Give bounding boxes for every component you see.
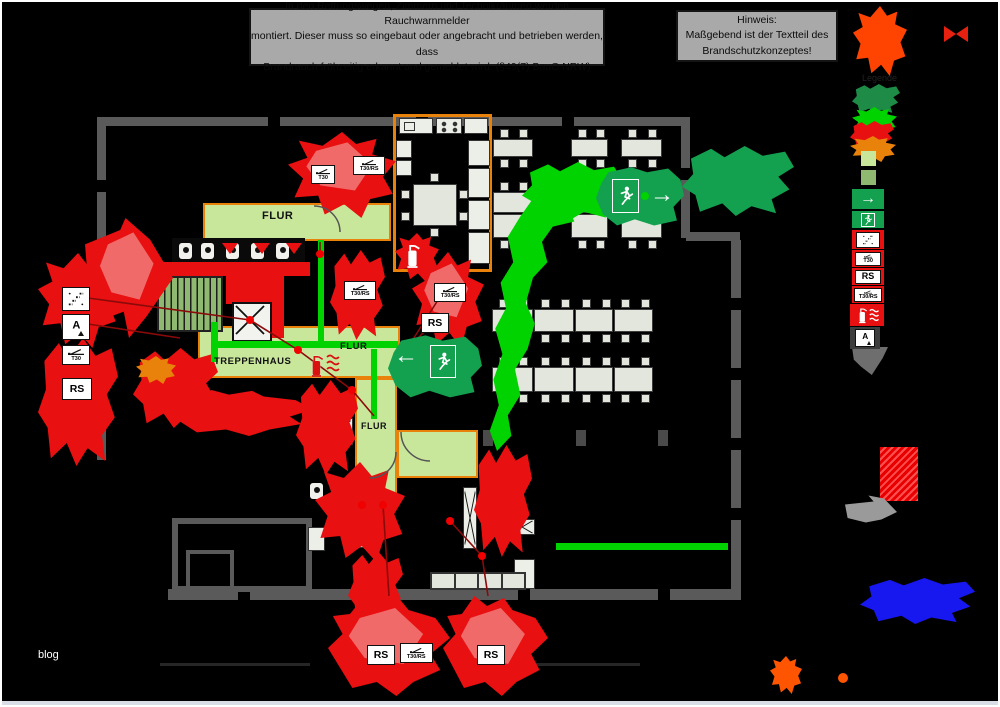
wall-segment: [97, 117, 106, 180]
wc-fixture: [201, 243, 214, 259]
door-tag-rs: RS: [477, 645, 505, 665]
kitchen-stove: [436, 118, 462, 134]
exit-man-icon: [612, 179, 639, 213]
wall-segment: [731, 450, 741, 508]
legend-gray-tail: [852, 347, 888, 375]
wall-segment: [574, 117, 690, 126]
stairs-route-tag: [62, 287, 90, 311]
kitchen-cabinet: [468, 168, 490, 198]
legend-rs-item: RS: [852, 268, 884, 285]
fire-protection-plan: In den Rettungswegen, Zimmern und Techni…: [0, 0, 1000, 707]
red-hatched-marker: [880, 447, 918, 501]
kitchen-fridge: [396, 140, 412, 158]
notice-box: In den Rettungswegen, Zimmern und Techni…: [249, 8, 605, 66]
bottom-strip: [2, 701, 998, 705]
route-node: [641, 192, 649, 200]
door-tag-t30: T30: [62, 345, 90, 365]
escape-route-line: [213, 341, 398, 348]
door-tag-t30rs: T30/RS: [344, 281, 376, 300]
door-tag-t30: T30: [855, 252, 881, 266]
door-tag-t30rs: T30/RS: [400, 643, 433, 663]
legend-title: Legende: [862, 73, 897, 83]
notice-line: montiert. Dieser muss so eingebaut oder …: [251, 29, 603, 59]
desk: [571, 214, 608, 238]
legend-swatch-sage: [861, 170, 876, 185]
hinweis-line: Maßgebend ist der Textteil des: [678, 28, 836, 43]
desk: [621, 139, 662, 157]
fire-extinguisher-icon: [306, 352, 344, 382]
legend-exit-item: [852, 211, 884, 228]
wall-segment: [530, 589, 658, 600]
staircase-label: TREPPENHAUS: [214, 356, 291, 367]
desk: [493, 139, 533, 157]
wall-stub: [576, 430, 586, 446]
kitchen-fridge: [396, 160, 412, 176]
door-tag-rs: RS: [62, 378, 92, 400]
chair: [430, 228, 439, 237]
alarm-tag: A: [855, 329, 875, 347]
hinweis-line: Brandschutzkonzeptes!: [678, 44, 836, 59]
sink-fixture: [308, 527, 325, 551]
door-tag-t30rs: T30/RS: [854, 288, 882, 302]
green-room: [397, 430, 478, 478]
wall-segment: [731, 380, 741, 438]
wall-segment: [681, 117, 690, 168]
notice-line: Brandrauch frühzeitig erkannt und gemeld…: [251, 60, 603, 75]
wc-fixture: [310, 483, 323, 499]
site-outline: [160, 663, 310, 666]
chair: [430, 173, 439, 182]
escape-route-line: [371, 349, 377, 419]
direction-arrow-right: →: [650, 183, 674, 207]
marker-bowtie: [956, 26, 968, 42]
kitchen-cabinet: [468, 232, 490, 264]
direction-arrow-right: →: [860, 191, 876, 207]
legend-swatch-lightgreen: [861, 151, 876, 166]
corridor-label: FLUR: [262, 210, 293, 222]
fire-wall-band: [150, 262, 310, 276]
door-tag-t30: T30: [311, 165, 335, 184]
stairs-route-tag: [856, 232, 880, 248]
legend-stairs-item: [852, 230, 884, 249]
wall-segment: [100, 117, 268, 126]
room-outline: [186, 550, 234, 590]
exit-man-icon: [430, 345, 456, 378]
desk: [571, 139, 608, 157]
wall-segment: [390, 589, 518, 600]
staircase-room: [198, 326, 400, 378]
legend-t30rs-item: T30/RS: [852, 286, 884, 303]
fire-extinguisher-icon: [401, 241, 431, 273]
fire-area-blob: [296, 380, 358, 475]
door-tag-t30rs: T30/RS: [434, 283, 466, 302]
locker-row: [430, 572, 526, 590]
shaft: [463, 487, 477, 549]
kitchen-counter: [464, 118, 488, 134]
chair: [401, 212, 410, 221]
exit-man-icon: [861, 213, 875, 227]
chair: [401, 190, 410, 199]
corridor-label: FLUR: [361, 421, 387, 431]
watermark: blog: [38, 649, 59, 661]
door-tag-t30rs: T30/RS: [353, 156, 385, 175]
elevator: [232, 302, 272, 342]
legend-extinguisher-item: [850, 304, 884, 326]
orange-marker-blob: [770, 656, 802, 694]
fire-area-blob: [474, 445, 532, 557]
kitchen-sink: [399, 118, 433, 134]
wall-segment: [731, 310, 741, 368]
kitchen-cabinet: [468, 200, 490, 230]
direction-arrow-left: ←: [394, 344, 418, 368]
door-tag-rs: RS: [421, 313, 449, 333]
hinweis-line: Hinweis:: [678, 13, 836, 28]
door-tag-rs: RS: [855, 270, 881, 284]
alarm-tag: A: [62, 314, 90, 340]
kitchen-cabinet: [468, 140, 490, 166]
chair: [459, 212, 468, 221]
exit-area-blob: [682, 146, 794, 216]
escape-route-line: [318, 240, 324, 344]
chair: [459, 190, 468, 199]
escape-route-line: [556, 543, 728, 550]
legend-alarm-item: A: [850, 327, 880, 349]
wall-stub: [658, 430, 668, 446]
hinweis-box: Hinweis: Maßgebend ist der Textteil des …: [676, 10, 838, 62]
legend-orange-blob: [853, 6, 907, 76]
legend-arrow-item: →: [852, 189, 884, 209]
wc-fixture: [179, 243, 192, 259]
orange-dot: [838, 673, 848, 683]
door-tag-rs: RS: [367, 645, 395, 665]
notice-line: In den Rettungswegen, Zimmern und Techni…: [251, 0, 603, 29]
wall-segment: [670, 589, 741, 600]
marker-bowtie: [944, 26, 956, 42]
wall-segment: [731, 240, 741, 298]
kitchen-table: [413, 184, 457, 226]
corridor-label: FLUR: [340, 341, 367, 352]
legend-t30-item: T30: [852, 250, 884, 267]
wc-fixture: [276, 243, 289, 259]
wall-segment: [731, 520, 741, 592]
blue-area-marker: [860, 578, 975, 624]
